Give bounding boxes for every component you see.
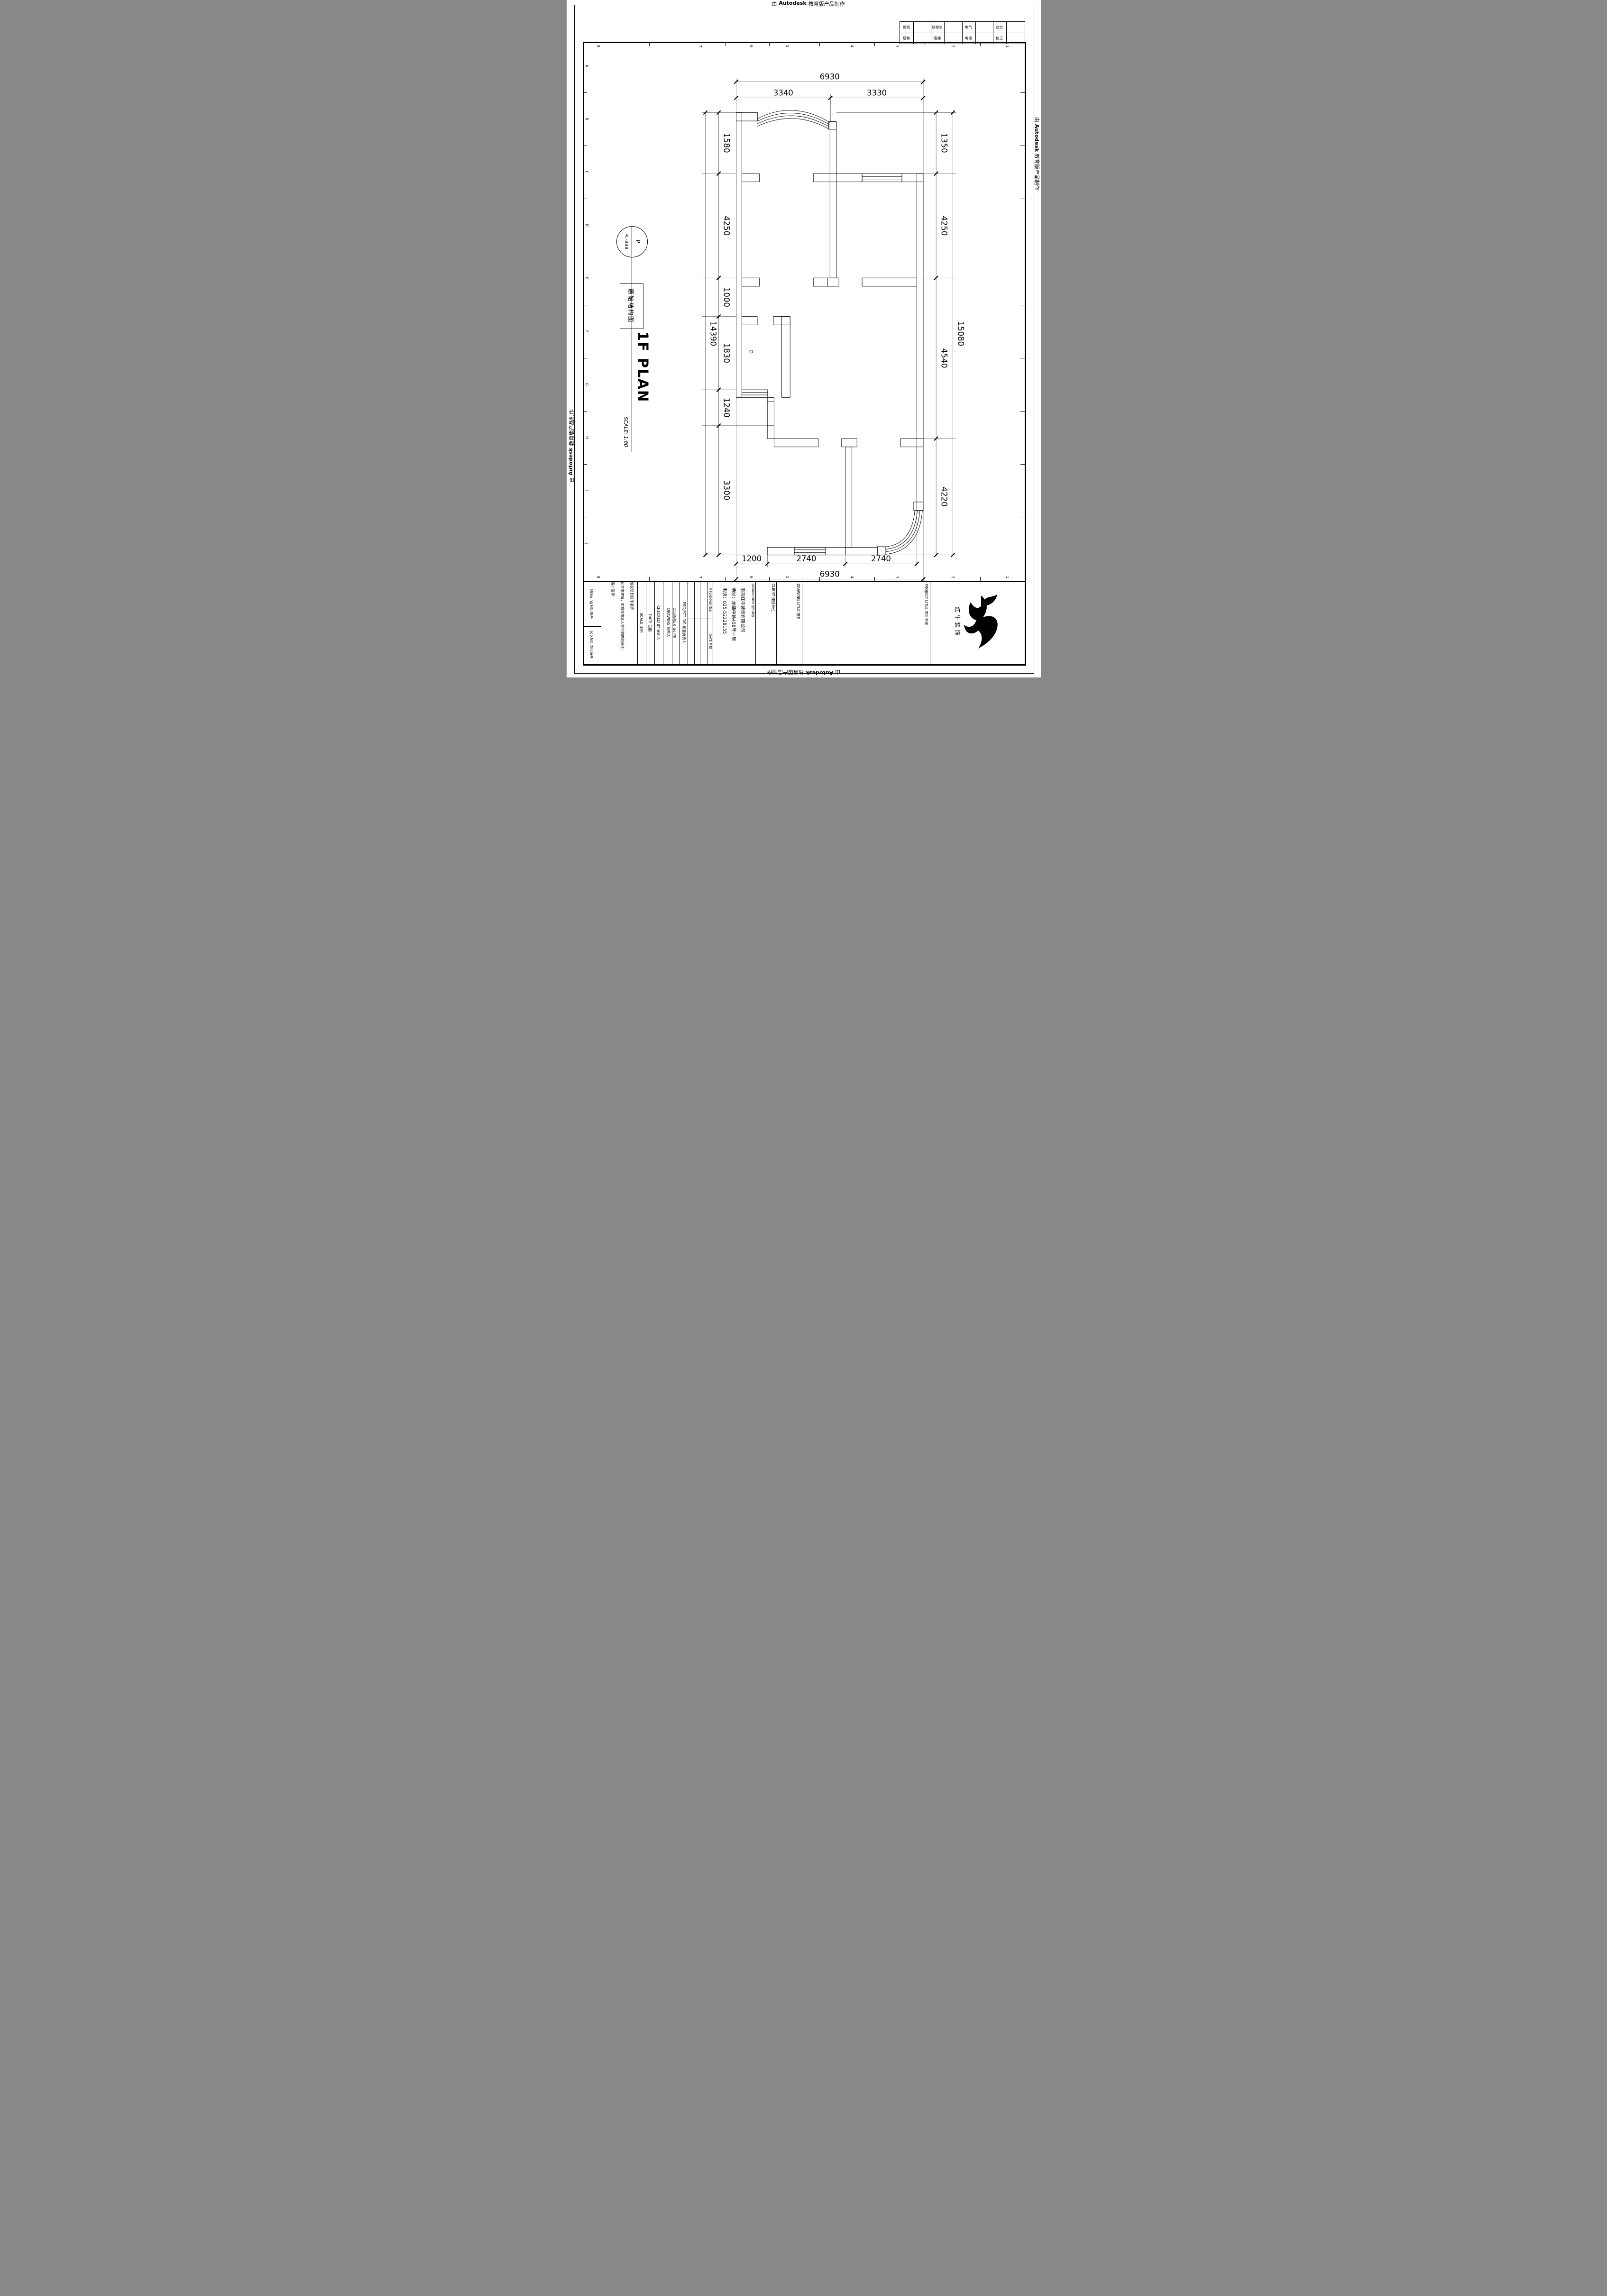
grid-row-left-i: I (584, 488, 590, 494)
titleblock-drawing-title: DRAWING LITLE 图名 (795, 584, 802, 662)
grid-col-bot-8: 8 (596, 575, 601, 580)
company-phone: 电话：025-52228155 (720, 587, 729, 659)
grid-row-left-a: A (584, 63, 590, 69)
dim-top-1: 3340 (773, 88, 793, 97)
titleblock-project-title: PROJECT LITLE 项目名称 (923, 584, 930, 662)
drawing-sheet: 由Autodesk教育版产品制作 由Autodesk教育版产品制作 由Autod… (567, 0, 1041, 677)
titleblock-client: CLIENT 建设单位 (770, 584, 776, 662)
dim-top-total: 6930 (819, 73, 839, 82)
grid-col-top-2: 2 (950, 44, 955, 49)
drawing-name: 原始结构图 (621, 284, 642, 327)
titleblock-designer: DESIGNER 设计师 (670, 582, 679, 664)
discipline-check: 校工 (993, 33, 1006, 43)
dim-bottom-3: 2740 (871, 554, 891, 563)
stamp-right: 由Autodesk教育版产品制作 (1034, 91, 1039, 216)
logo-text: 红牛装饰 (954, 601, 961, 643)
red-bull-logo-icon (964, 594, 999, 649)
grid-col-top-8: 8 (596, 44, 601, 49)
dim-right-4: 4220 (939, 487, 948, 507)
dimension-labels: 6930 3340 3330 1580 4250 1000 1830 1240 … (708, 73, 965, 579)
dim-right-3: 4540 (939, 348, 948, 368)
titleblock-checked-by: CHECKED BY 审定人 (654, 582, 663, 664)
titleblock-project-dir: PROJECT DIR 项目负责人 (681, 582, 688, 664)
grid-row-left-g: G (584, 382, 590, 387)
grid-col-top-5: 5 (785, 44, 790, 49)
dim-right-2: 4250 (939, 216, 948, 236)
grid-col-top-3: 3 (894, 44, 900, 49)
dimension-lines (702, 78, 956, 581)
discipline-plumbing: 给排水 (931, 22, 944, 32)
titleblock-company: 南京红牛装饰有限公司 地址：龙蟠中路458号一层 电话：025-52228155 (720, 587, 747, 659)
dimension-ticks (703, 80, 955, 581)
discipline-hvac: 暖通 (931, 33, 944, 43)
grid-col-bot-1: 1 (1005, 575, 1010, 580)
grid-row-left-j: J (584, 541, 590, 547)
discipline-arch: 建筑 (900, 22, 913, 32)
bubble-label-pl888: PL-888 (621, 226, 631, 256)
discipline-power: 动力 (993, 22, 1006, 32)
discipline-telecom: 电讯 (962, 33, 975, 43)
dim-left-3: 1000 (722, 287, 731, 307)
grid-row-left-e: E (584, 275, 590, 281)
grid-col-top-6: 6 (749, 44, 754, 49)
dim-top-2: 3330 (867, 88, 887, 97)
discipline-electrical: 电气 (962, 22, 975, 32)
dim-left-1: 1580 (722, 133, 731, 153)
stamp-top: 由Autodesk教育版产品制作 (756, 0, 861, 6)
dim-left-4: 1830 (722, 343, 731, 363)
grid-row-left-d: D (584, 222, 590, 228)
grid-col-top-7: 7 (698, 44, 703, 49)
titleblock-revisions: REVISIONS 版本 (707, 582, 713, 619)
dim-bottom-1: 1200 (742, 554, 762, 563)
company-address: 地址：龙蟠中路458号一层 (729, 587, 738, 659)
dim-left-2: 4250 (722, 216, 731, 236)
discipline-structure: 结构 (900, 33, 913, 43)
plan-scale-note: SCALE: 1:80 (620, 409, 631, 455)
stamp-bottom: 由Autodesk教育版产品制作 (753, 669, 855, 676)
titleblock-rev-date: DATE 日期 (707, 619, 713, 664)
grid-col-top-4: 4 (849, 44, 854, 49)
bubble-divider-line (632, 226, 632, 452)
grid-col-top-1: 1 (1005, 44, 1010, 49)
disclaimer-line-2: 此方案理解，同意按由本人签字的图纸施工; (617, 582, 627, 664)
titleblock-date: DATE 日期 (646, 582, 654, 664)
dim-bottom-total: 6930 (819, 569, 839, 578)
dim-bottom-2: 2740 (796, 554, 816, 563)
company-name: 南京红牛装饰有限公司 (738, 587, 747, 659)
titleblock-drawing-no: Drawing NO 图号 (583, 582, 601, 626)
titleblock-design-firm: DESIGN FIRM 设计单位 (750, 584, 755, 629)
dim-left-total: 14390 (708, 321, 717, 346)
discipline-table: 建筑 给排水 电气 动力 结构 暖通 电讯 校工 (900, 21, 1025, 44)
grid-row-left-h: H (584, 435, 590, 440)
titleblock-scale: SCALE 比例 (637, 582, 646, 664)
titleblock-job-no: Job NO 项目编号 (583, 626, 601, 664)
dim-left-5: 1240 (722, 398, 731, 418)
floor-drain (750, 350, 753, 353)
plan-title: 1F PLAN (633, 326, 653, 408)
floor-plan: 6930 3340 3330 1580 4250 1000 1830 1240 … (694, 69, 967, 581)
titleblock-disclaimer: 版权所有红牛装饰 此方案理解，同意按由本人签字的图纸施工; 客户签字: (600, 582, 637, 664)
bubble-label-p: P (634, 233, 642, 249)
dim-right-total: 15080 (956, 321, 965, 347)
stamp-left: 由Autodesk教育版产品制作 (568, 384, 574, 508)
stamp-text: 由 (771, 0, 777, 6)
grid-row-left-b: B (584, 116, 590, 122)
disclaimer-line-1: 版权所有红牛装饰 (627, 582, 636, 664)
grid-row-left-c: C (584, 169, 590, 175)
dim-right-1: 1350 (939, 133, 948, 153)
walls (736, 110, 923, 555)
grid-row-left-f: F (584, 329, 590, 334)
dim-left-6: 3300 (722, 480, 731, 500)
disclaimer-line-3: 客户签字: (608, 582, 617, 664)
